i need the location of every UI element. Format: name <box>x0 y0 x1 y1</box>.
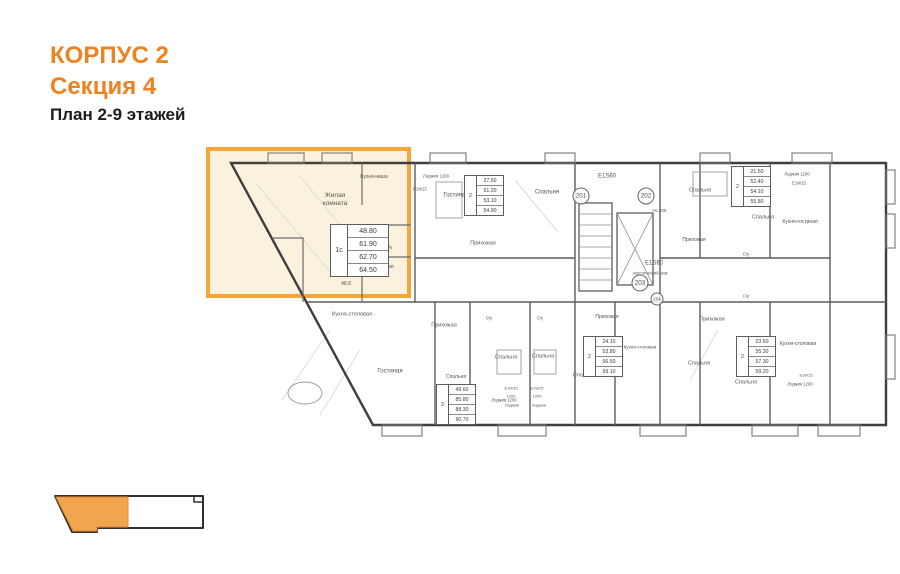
unit-number-badge: 202 <box>638 188 655 205</box>
area-value: 54.10 <box>744 187 770 197</box>
area-value: 90.70 <box>449 415 475 424</box>
area-value: 59.10 <box>596 367 622 376</box>
apartment-area-table: 221.5052.4054.1055.80 <box>731 166 771 207</box>
area-value: 51.20 <box>477 186 503 196</box>
room-label: Спальня <box>535 189 559 196</box>
title-block: КОРПУС 2 Секция 4 План 2-9 этажей <box>50 40 185 128</box>
room-label: Лоджия <box>505 404 519 409</box>
plan-caption: План 2-9 этажей <box>50 102 185 128</box>
room-label: Лоджия 1200 <box>784 171 809 176</box>
area-value: 57.30 <box>749 357 775 367</box>
area-value: 52.40 <box>744 177 770 187</box>
area-value: 64.50 <box>348 264 388 276</box>
room-label: Прихожая <box>431 323 457 330</box>
area-value: 48.80 <box>348 225 388 238</box>
apartment-area-table: 1с48.8061.9062.7064.50 <box>330 224 389 277</box>
area-value: 55.30 <box>749 347 775 357</box>
room-label: Жилая комната <box>323 192 348 208</box>
room-label: Кухня-столовая <box>332 312 372 319</box>
room-label: Кухня-столовая <box>624 344 657 349</box>
room-label: Прихожая <box>595 314 618 320</box>
room-label: Е1S60 <box>598 173 616 180</box>
room-label: С/у <box>486 315 492 320</box>
room-label: Е1W15 <box>799 374 812 379</box>
area-value: 55.80 <box>744 197 770 206</box>
page: КОРПУС 2 Секция 4 План 2-9 этажей <box>0 0 900 574</box>
room-label: Спальня <box>446 374 466 380</box>
room-label: Лоджия <box>532 404 546 409</box>
apartment-type: 2 <box>732 167 744 206</box>
area-value: 23.60 <box>749 337 775 347</box>
room-label: Е1W15 <box>792 180 806 185</box>
room-label: Спальня <box>495 355 517 362</box>
unit-number-badge: 203 <box>632 275 649 292</box>
area-value: 53.10 <box>477 196 503 206</box>
room-label: Прихожая <box>470 241 496 248</box>
room-label: С/у <box>537 315 543 320</box>
apartment-area-table: 349.6085.8088.3090.70 <box>436 384 476 425</box>
area-value: 85.80 <box>449 395 475 405</box>
apartment-type: 3 <box>437 385 449 424</box>
building-title: КОРПУС 2 <box>50 40 185 71</box>
area-value: 54.90 <box>477 206 503 215</box>
room-label: Кухня-столовая <box>780 341 816 347</box>
area-value: 49.60 <box>449 385 475 395</box>
room-label: Кухня-ниша <box>360 174 387 180</box>
unit-number-badge: 204 <box>651 293 664 306</box>
room-label: Спальня <box>688 361 710 368</box>
room-label: Спальня <box>689 188 711 195</box>
apartment-area-table: 223.6055.3057.3059.20 <box>736 336 776 377</box>
apartment-type: 2 <box>737 337 749 376</box>
apartment-type: 2 <box>465 176 477 215</box>
area-value: 21.50 <box>744 167 770 177</box>
room-label: Спальня <box>735 380 757 387</box>
room-label: Прихожая <box>699 317 725 324</box>
area-value: 61.90 <box>348 238 388 251</box>
room-label: Е1W15 <box>530 387 543 392</box>
room-label: Е1S60 <box>645 260 663 267</box>
room-label: С/у <box>743 293 749 298</box>
room-label: С/у <box>743 251 749 256</box>
apartment-type: 2 <box>584 337 596 376</box>
room-label: 48.8 <box>341 281 351 287</box>
area-value: 59.20 <box>749 367 775 376</box>
area-value: 88.30 <box>449 405 475 415</box>
area-value: 56.50 <box>596 357 622 367</box>
unit-number-badge: 201 <box>573 188 590 205</box>
apartment-area-table: 227.5051.2053.1054.90 <box>464 175 504 216</box>
room-label: Спальня <box>532 354 554 361</box>
room-label: Спальня <box>752 215 774 222</box>
room-label: Прихожая <box>682 237 705 243</box>
room-label: Гостиная <box>377 368 402 375</box>
room-label: Кухня-гостиная <box>782 219 817 225</box>
room-label: Лоджия 1200 <box>423 173 449 178</box>
room-label: +6.200 <box>652 209 667 215</box>
area-value: 27.50 <box>477 176 503 186</box>
section-title: Секция 4 <box>50 71 185 102</box>
room-label: Лоджия 1200 <box>787 381 812 386</box>
room-label: Е1W15 <box>413 186 427 191</box>
room-label: 1200 <box>533 395 542 400</box>
room-label: 1200 <box>507 395 516 400</box>
area-value: 53.80 <box>596 347 622 357</box>
area-value: 24.10 <box>596 337 622 347</box>
apartment-area-table: 224.1053.8056.5059.10 <box>583 336 623 377</box>
apartment-type: 1с <box>331 225 348 276</box>
area-value: 62.70 <box>348 251 388 264</box>
room-label: Е1W15 <box>504 387 517 392</box>
